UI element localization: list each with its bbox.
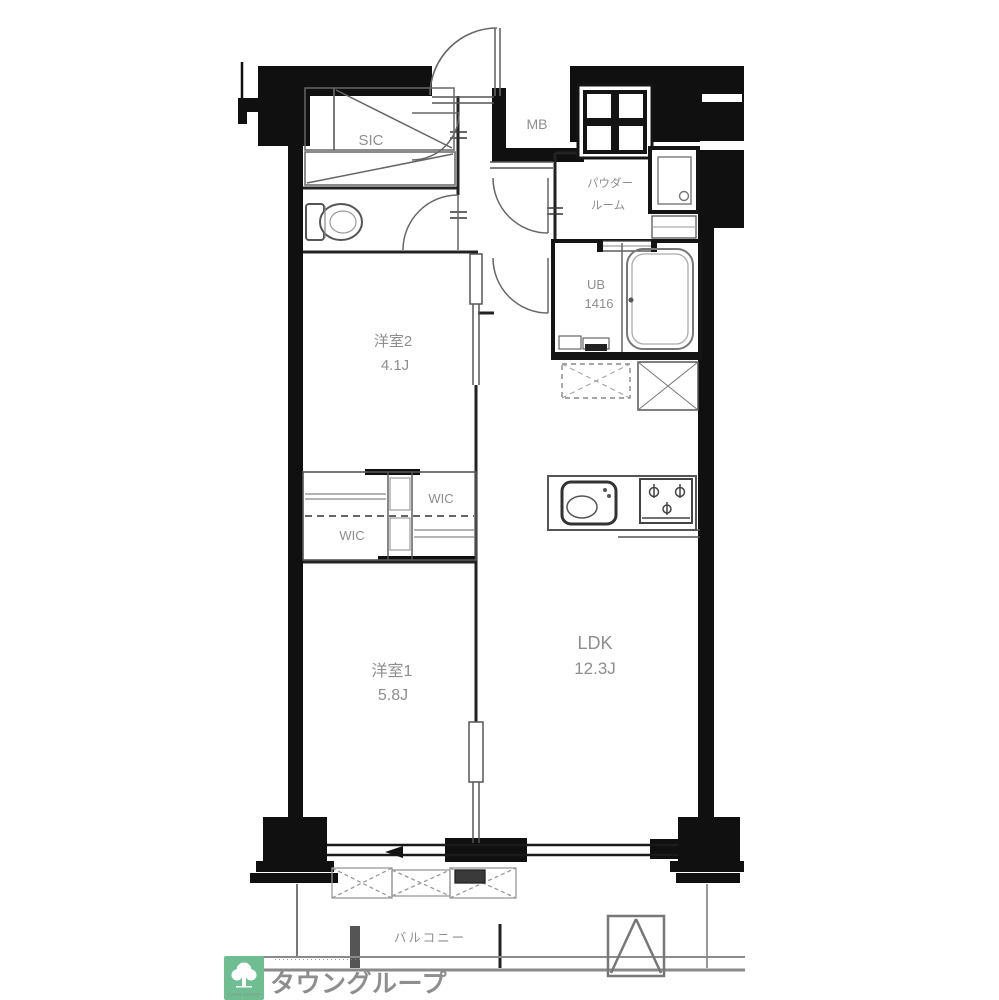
entrance-door bbox=[430, 28, 500, 96]
sic-label: SIC bbox=[358, 132, 383, 149]
mb-label: MB bbox=[527, 116, 548, 132]
ldk-area: 12.3J bbox=[574, 659, 616, 678]
wic-lower-label: WIC bbox=[339, 528, 364, 543]
bedroom2-area: 4.1J bbox=[381, 357, 409, 374]
brand-name: タウングループ bbox=[270, 970, 448, 998]
unit-bath-label: UB bbox=[587, 277, 605, 292]
unit-bath-size: 1416 bbox=[585, 296, 614, 311]
hatch-box bbox=[608, 916, 664, 976]
floorplan-canvas: SIC MB パウダー ルーム UB 1416 洋室2 4.1J WIC WIC… bbox=[0, 0, 999, 1000]
logo-caption: TOWN GROUP bbox=[227, 992, 260, 997]
storage-boxes bbox=[562, 362, 698, 410]
brand-tagline: ･･････････････････････ bbox=[274, 958, 362, 964]
bedroom1-label: 洋室1 bbox=[372, 662, 413, 680]
wall-ticks bbox=[450, 132, 563, 218]
ps-duct bbox=[578, 85, 652, 158]
balcony-label: バルコニー bbox=[394, 931, 466, 945]
powder-room-label-1: パウダー bbox=[587, 176, 633, 190]
ldk-label: LDK bbox=[577, 633, 612, 653]
window-box-units bbox=[332, 868, 516, 898]
kitchen-counter bbox=[548, 476, 696, 530]
floorplan-page: SIC MB パウダー ルーム UB 1416 洋室2 4.1J WIC WIC… bbox=[0, 0, 999, 1000]
bedroom1-area: 5.8J bbox=[378, 687, 408, 704]
powder-room-label-2: ルーム bbox=[591, 199, 625, 212]
washer-pan bbox=[650, 148, 698, 238]
bath-door bbox=[597, 239, 657, 252]
brand-logo: TOWN GROUP ･･････････････････････ タウングルー… bbox=[224, 956, 448, 1000]
wic-closets bbox=[303, 472, 476, 560]
toilet-fixture bbox=[306, 204, 362, 240]
bathtub bbox=[559, 243, 693, 352]
wic-upper-label: WIC bbox=[428, 491, 453, 506]
interior-walls bbox=[303, 96, 650, 782]
bedroom2-label: 洋室2 bbox=[374, 333, 412, 350]
